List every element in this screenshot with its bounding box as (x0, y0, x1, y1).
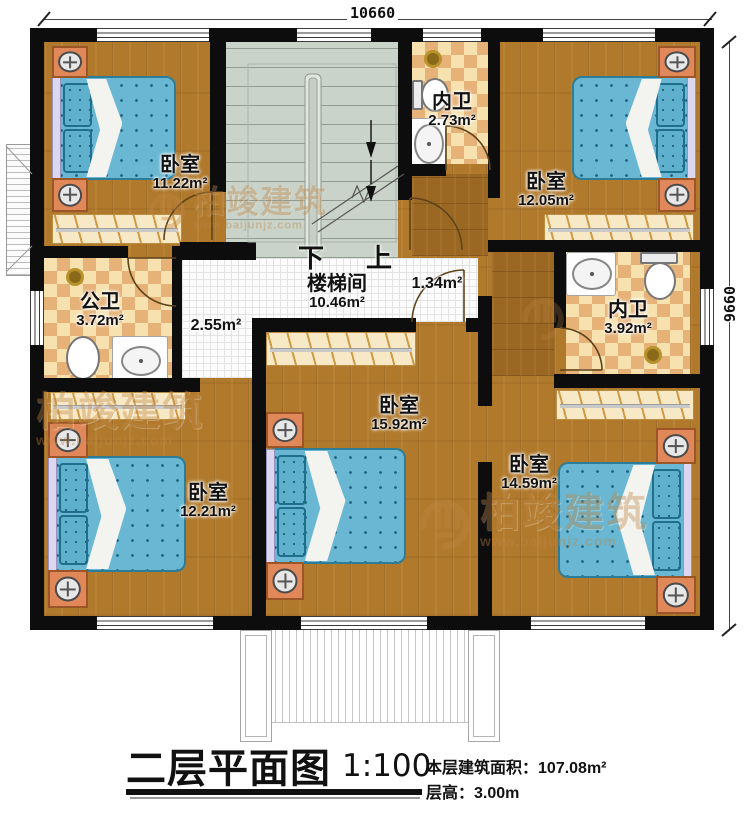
nightstand (658, 178, 696, 212)
room-area: 3.92m² (604, 321, 652, 337)
wall-segment (488, 42, 500, 198)
area-label-hall-small: 1.34m² (412, 276, 463, 293)
bed-headboard (52, 77, 61, 179)
bed (558, 462, 692, 578)
wall-segment (478, 462, 492, 616)
pillow (59, 515, 88, 565)
wall-segment (398, 174, 412, 200)
wall-segment (398, 42, 412, 174)
wall-segment (252, 318, 416, 332)
sink-icon (414, 124, 444, 164)
shower-head-icon (424, 50, 442, 68)
area-label-hall-left: 2.55m² (191, 318, 242, 335)
room-area: 12.05m² (518, 193, 574, 209)
bed (572, 76, 696, 180)
room-label-bathroom-top: 内卫 2.73m² (428, 92, 476, 129)
pillow (63, 83, 92, 127)
bed (48, 456, 186, 572)
wall-segment (554, 374, 700, 388)
room-name: 楼梯间 (307, 274, 367, 295)
pillow (63, 129, 92, 173)
wall-segment (44, 378, 200, 392)
room-name: 卧室 (518, 172, 574, 193)
corridor-floor (492, 252, 554, 376)
room-label-bathroom-public: 公卫 3.72m² (76, 292, 124, 329)
window (30, 290, 44, 346)
bed-sheet (305, 451, 346, 561)
room-name: 卧室 (152, 155, 207, 176)
nightstand (266, 412, 304, 448)
room-label-bedroom-center: 卧室 15.92m² (371, 396, 427, 433)
room-label-bathroom-right: 内卫 3.92m² (604, 300, 652, 337)
room-area: 3.72m² (76, 313, 124, 329)
wall-segment (554, 252, 566, 328)
pillow (277, 507, 306, 557)
pillow (59, 463, 88, 513)
stair-up-label: 上 (366, 238, 392, 275)
window (300, 616, 428, 630)
nightstand (266, 562, 304, 600)
bed-sheet (86, 79, 122, 177)
right-dimension-line (729, 42, 730, 630)
window (422, 28, 482, 42)
title-underline (126, 789, 422, 795)
room-label-bedroom-bl: 卧室 12.21m² (180, 483, 236, 520)
shower-head-icon (66, 268, 84, 286)
room-name: 卧室 (180, 483, 236, 504)
wall-segment (180, 242, 256, 260)
wall-segment (252, 318, 266, 616)
window (296, 28, 372, 42)
pillow (652, 521, 681, 571)
room-label-bedroom-br: 卧室 14.59m² (501, 455, 557, 492)
bed-sheet (616, 465, 655, 575)
room-area: 10.46m² (307, 295, 367, 311)
room-name: 卧室 (371, 396, 427, 417)
room-name: 卧室 (501, 455, 557, 476)
balcony-roof-hatch (254, 630, 482, 723)
pillow (277, 455, 306, 505)
title-underline-shadow (130, 797, 420, 799)
floorplan-canvas: 10660 9660 (0, 0, 750, 816)
nightstand (48, 422, 88, 458)
room-area: 15.92m² (371, 417, 427, 433)
window (96, 28, 210, 42)
floor-height-value: 3.00m (474, 785, 519, 802)
bed-sheet (86, 459, 126, 569)
balcony-post (468, 630, 500, 742)
window (96, 616, 214, 630)
room-label-bedroom-tl: 卧室 11.22m² (152, 155, 207, 192)
wall-segment (412, 164, 446, 176)
wall-segment (44, 246, 128, 258)
room-label-bedroom-tr: 卧室 12.05m² (518, 172, 574, 209)
sink-icon (121, 346, 161, 376)
toilet-icon (66, 336, 100, 380)
wardrobe (556, 390, 694, 420)
nightstand (48, 570, 88, 608)
bed (266, 448, 406, 564)
stairwell-floor (226, 42, 398, 258)
nightstand (52, 178, 88, 212)
corridor-floor (412, 174, 488, 256)
room-label-stairwell: 楼梯间 10.46m² (307, 274, 367, 311)
nightstand (658, 46, 696, 78)
pillow (656, 129, 685, 173)
wardrobe (52, 214, 182, 244)
nightstand (52, 46, 88, 78)
drawing-scale: 1:100 (342, 748, 431, 784)
wardrobe (50, 392, 186, 420)
toilet-icon (644, 262, 676, 300)
drawing-title: 二层平面图 (126, 736, 331, 794)
floor-area-label: 本层建筑面积： (426, 760, 538, 777)
pillow (652, 469, 681, 519)
floor-height-label: 层高： (426, 785, 474, 802)
room-area: 2.73m² (428, 113, 476, 129)
wardrobe (266, 332, 416, 366)
room-name: 内卫 (604, 300, 652, 321)
room-name: 公卫 (76, 292, 124, 313)
floor-area-value: 107.08m² (538, 760, 607, 777)
room-name: 内卫 (428, 92, 476, 113)
sink-icon (572, 258, 612, 290)
room-area: 11.22m² (152, 176, 207, 192)
wall-segment (500, 240, 700, 252)
floor-height-info: 层高：3.00m (426, 779, 519, 803)
stair-down-label: 下 (298, 238, 324, 275)
wall-segment (488, 240, 500, 252)
room-area: 1.34m² (412, 276, 463, 293)
bed-headboard (683, 463, 692, 577)
balcony-post-inner (245, 635, 267, 737)
balcony-post-inner (473, 635, 495, 737)
right-dimension-label: 9660 (718, 286, 742, 322)
top-dimension-label: 10660 (347, 4, 398, 22)
room-area: 14.59m² (501, 476, 557, 492)
wall-segment (172, 246, 182, 378)
floor-area-info: 本层建筑面积：107.08m² (426, 754, 607, 778)
bed-headboard (266, 449, 275, 563)
wall-segment (478, 296, 492, 406)
nightstand (656, 576, 696, 614)
bed-sheet (626, 79, 662, 177)
shower-head-icon (644, 346, 662, 364)
pillow (656, 83, 685, 127)
bed-headboard (687, 77, 696, 179)
wall-segment (210, 42, 226, 192)
room-area: 2.55m² (191, 318, 242, 335)
bed-headboard (48, 457, 57, 571)
nightstand (656, 428, 696, 464)
window (700, 288, 714, 346)
room-area: 12.21m² (180, 504, 236, 520)
balcony-post (240, 630, 272, 742)
window (530, 616, 646, 630)
window (542, 28, 656, 42)
